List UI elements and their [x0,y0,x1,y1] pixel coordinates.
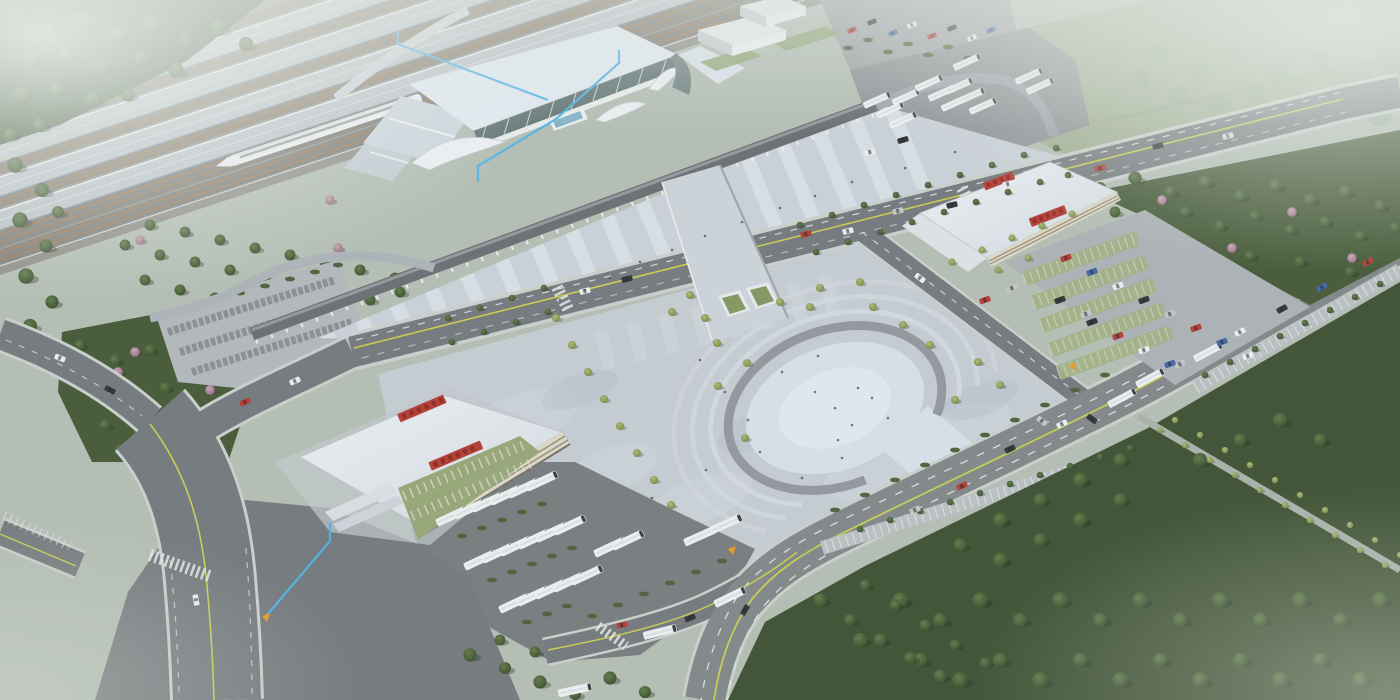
fog-overlays [0,0,1400,700]
scene-canvas [0,0,1400,700]
aerial-rendering [0,0,1400,700]
